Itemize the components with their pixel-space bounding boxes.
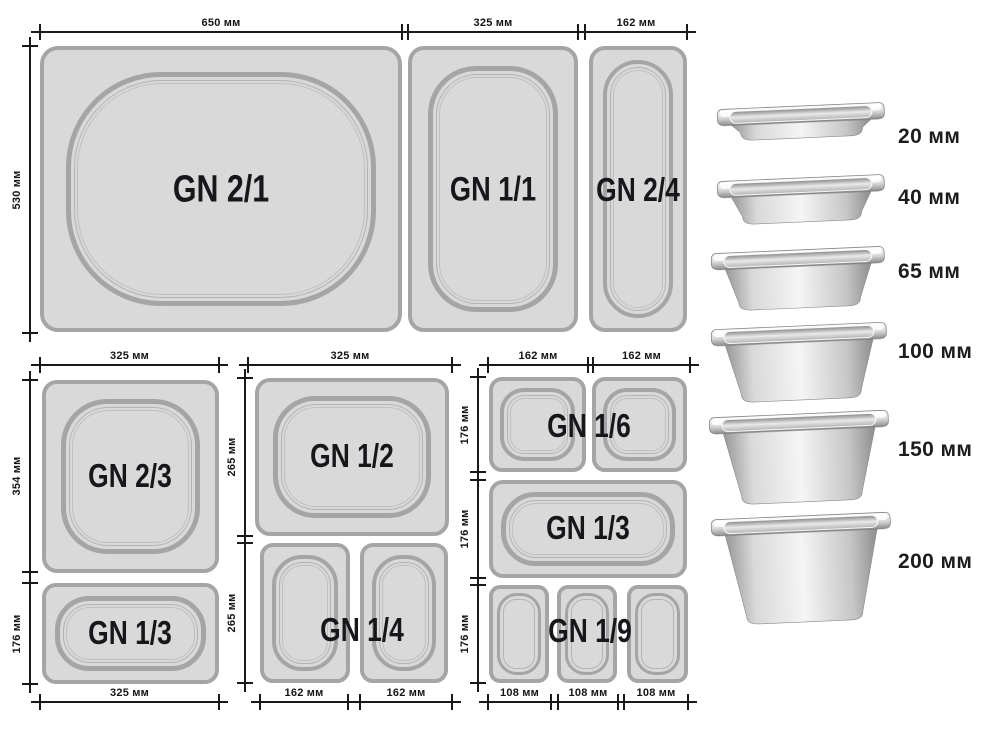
dimension-label-g3t: 325 мм xyxy=(331,350,370,362)
pan-label-gn19: GN 1/9 xyxy=(548,614,632,647)
depth-label-p100: 100 мм xyxy=(898,340,972,364)
dimension-tick xyxy=(686,24,688,40)
dimension-line-g4ta xyxy=(479,364,597,366)
dimension-line-v265a xyxy=(244,369,246,545)
dimension-line-g4tb xyxy=(584,364,699,366)
pan-well-line-gn19c xyxy=(641,599,674,669)
pan-label-gn13a: GN 1/3 xyxy=(88,616,172,649)
dimension-tick xyxy=(584,24,586,40)
dimension-tick xyxy=(687,694,689,710)
dimension-tick xyxy=(470,682,486,684)
dimension-tick xyxy=(470,376,486,378)
dimension-label-g3bb: 162 мм xyxy=(387,687,426,699)
dimension-tick xyxy=(39,357,41,373)
pan-well-gn19c xyxy=(635,593,680,675)
pan-well-gn19a xyxy=(497,593,541,675)
gastronorm-sizes-diagram: GN 2/1GN 1/1GN 2/4GN 2/3GN 1/3GN 1/2GN 1… xyxy=(0,0,998,734)
dimension-line-g3t xyxy=(239,364,461,366)
dimension-tick xyxy=(39,694,41,710)
depth-label-p200: 200 мм xyxy=(898,550,972,574)
dimension-label-g4bc: 108 мм xyxy=(637,687,676,699)
dimension-label-v265b: 265 мм xyxy=(226,594,238,633)
dimension-line-g3ba xyxy=(251,701,357,703)
dimension-line-t650 xyxy=(31,31,411,33)
dimension-tick xyxy=(347,694,349,710)
dimension-tick xyxy=(22,683,38,685)
dimension-tick xyxy=(451,357,453,373)
dimension-tick xyxy=(39,24,41,40)
dimension-label-v354: 354 мм xyxy=(11,457,23,496)
dimension-label-g2b: 325 мм xyxy=(110,687,149,699)
pan-photo-p100 xyxy=(706,316,892,414)
pan-photo-p150 xyxy=(704,404,894,516)
dimension-line-v354 xyxy=(29,371,31,581)
dimension-line-g2b xyxy=(31,701,228,703)
pan-photo-p40 xyxy=(712,168,890,236)
pan-photo-p200 xyxy=(706,506,896,636)
dimension-tick xyxy=(259,694,261,710)
dimension-line-v530 xyxy=(29,37,31,342)
dimension-tick xyxy=(237,377,253,379)
dimension-line-v176c xyxy=(477,471,479,587)
dimension-label-g4ba: 108 мм xyxy=(500,687,539,699)
pan-label-gn23: GN 2/3 xyxy=(88,459,172,492)
dimension-line-v265b xyxy=(244,534,246,692)
dimension-label-v176b: 176 мм xyxy=(459,405,471,444)
depth-label-p40: 40 мм xyxy=(898,186,960,210)
dimension-tick xyxy=(22,45,38,47)
dimension-line-g4ba xyxy=(479,701,560,703)
dimension-line-v176d xyxy=(477,576,479,692)
dimension-tick xyxy=(407,24,409,40)
dimension-tick xyxy=(237,682,253,684)
dimension-line-g2t xyxy=(31,364,228,366)
pan-label-gn13b: GN 1/3 xyxy=(546,511,630,544)
dimension-tick xyxy=(237,542,253,544)
dimension-label-g4bb: 108 мм xyxy=(569,687,608,699)
dimension-line-g3bb xyxy=(351,701,461,703)
pan-label-gn11: GN 1/1 xyxy=(450,173,536,207)
dimension-label-t650: 650 мм xyxy=(202,17,241,29)
dimension-tick xyxy=(470,479,486,481)
dimension-tick xyxy=(689,357,691,373)
dimension-tick xyxy=(470,584,486,586)
pan-label-gn24: GN 2/4 xyxy=(596,173,680,206)
dimension-tick xyxy=(22,379,38,381)
dimension-label-t162: 162 мм xyxy=(617,17,656,29)
pan-well-line-gn19a xyxy=(503,599,535,669)
dimension-line-g4bc xyxy=(615,701,697,703)
pan-label-gn21: GN 2/1 xyxy=(173,170,269,208)
dimension-tick xyxy=(218,357,220,373)
dimension-label-g4tb: 162 мм xyxy=(622,350,661,362)
pan-outline-gn19a xyxy=(489,585,549,683)
dimension-tick xyxy=(247,357,249,373)
dimension-tick xyxy=(218,694,220,710)
pan-label-gn12: GN 1/2 xyxy=(310,439,394,472)
dimension-label-v176a: 176 мм xyxy=(11,614,23,653)
dimension-tick xyxy=(623,694,625,710)
depth-label-p150: 150 мм xyxy=(898,438,972,462)
dimension-label-v265a: 265 мм xyxy=(226,438,238,477)
dimension-label-v530: 530 мм xyxy=(11,170,23,209)
pan-label-gn14: GN 1/4 xyxy=(320,613,404,646)
pan-photo-p20 xyxy=(712,96,890,152)
depth-label-p65: 65 мм xyxy=(898,260,960,284)
dimension-line-v176a xyxy=(29,574,31,693)
pan-photo-p65 xyxy=(706,240,890,322)
dimension-line-t162 xyxy=(576,31,696,33)
pan-outline-gn19c xyxy=(627,585,688,683)
dimension-tick xyxy=(557,694,559,710)
dimension-label-g3ba: 162 мм xyxy=(285,687,324,699)
dimension-tick xyxy=(487,694,489,710)
dimension-tick xyxy=(487,357,489,373)
dimension-label-t325: 325 мм xyxy=(474,17,513,29)
dimension-tick xyxy=(22,332,38,334)
dimension-label-v176c: 176 мм xyxy=(459,510,471,549)
dimension-label-g4ta: 162 мм xyxy=(519,350,558,362)
pan-label-gn16: GN 1/6 xyxy=(547,409,631,442)
dimension-tick xyxy=(451,694,453,710)
dimension-tick xyxy=(22,582,38,584)
dimension-label-g2t: 325 мм xyxy=(110,350,149,362)
dimension-line-t325 xyxy=(399,31,587,33)
dimension-label-v176d: 176 мм xyxy=(459,615,471,654)
depth-label-p20: 20 мм xyxy=(898,125,960,149)
dimension-tick xyxy=(592,357,594,373)
dimension-tick xyxy=(22,571,38,573)
dimension-tick xyxy=(359,694,361,710)
dimension-line-v176b xyxy=(477,368,479,481)
